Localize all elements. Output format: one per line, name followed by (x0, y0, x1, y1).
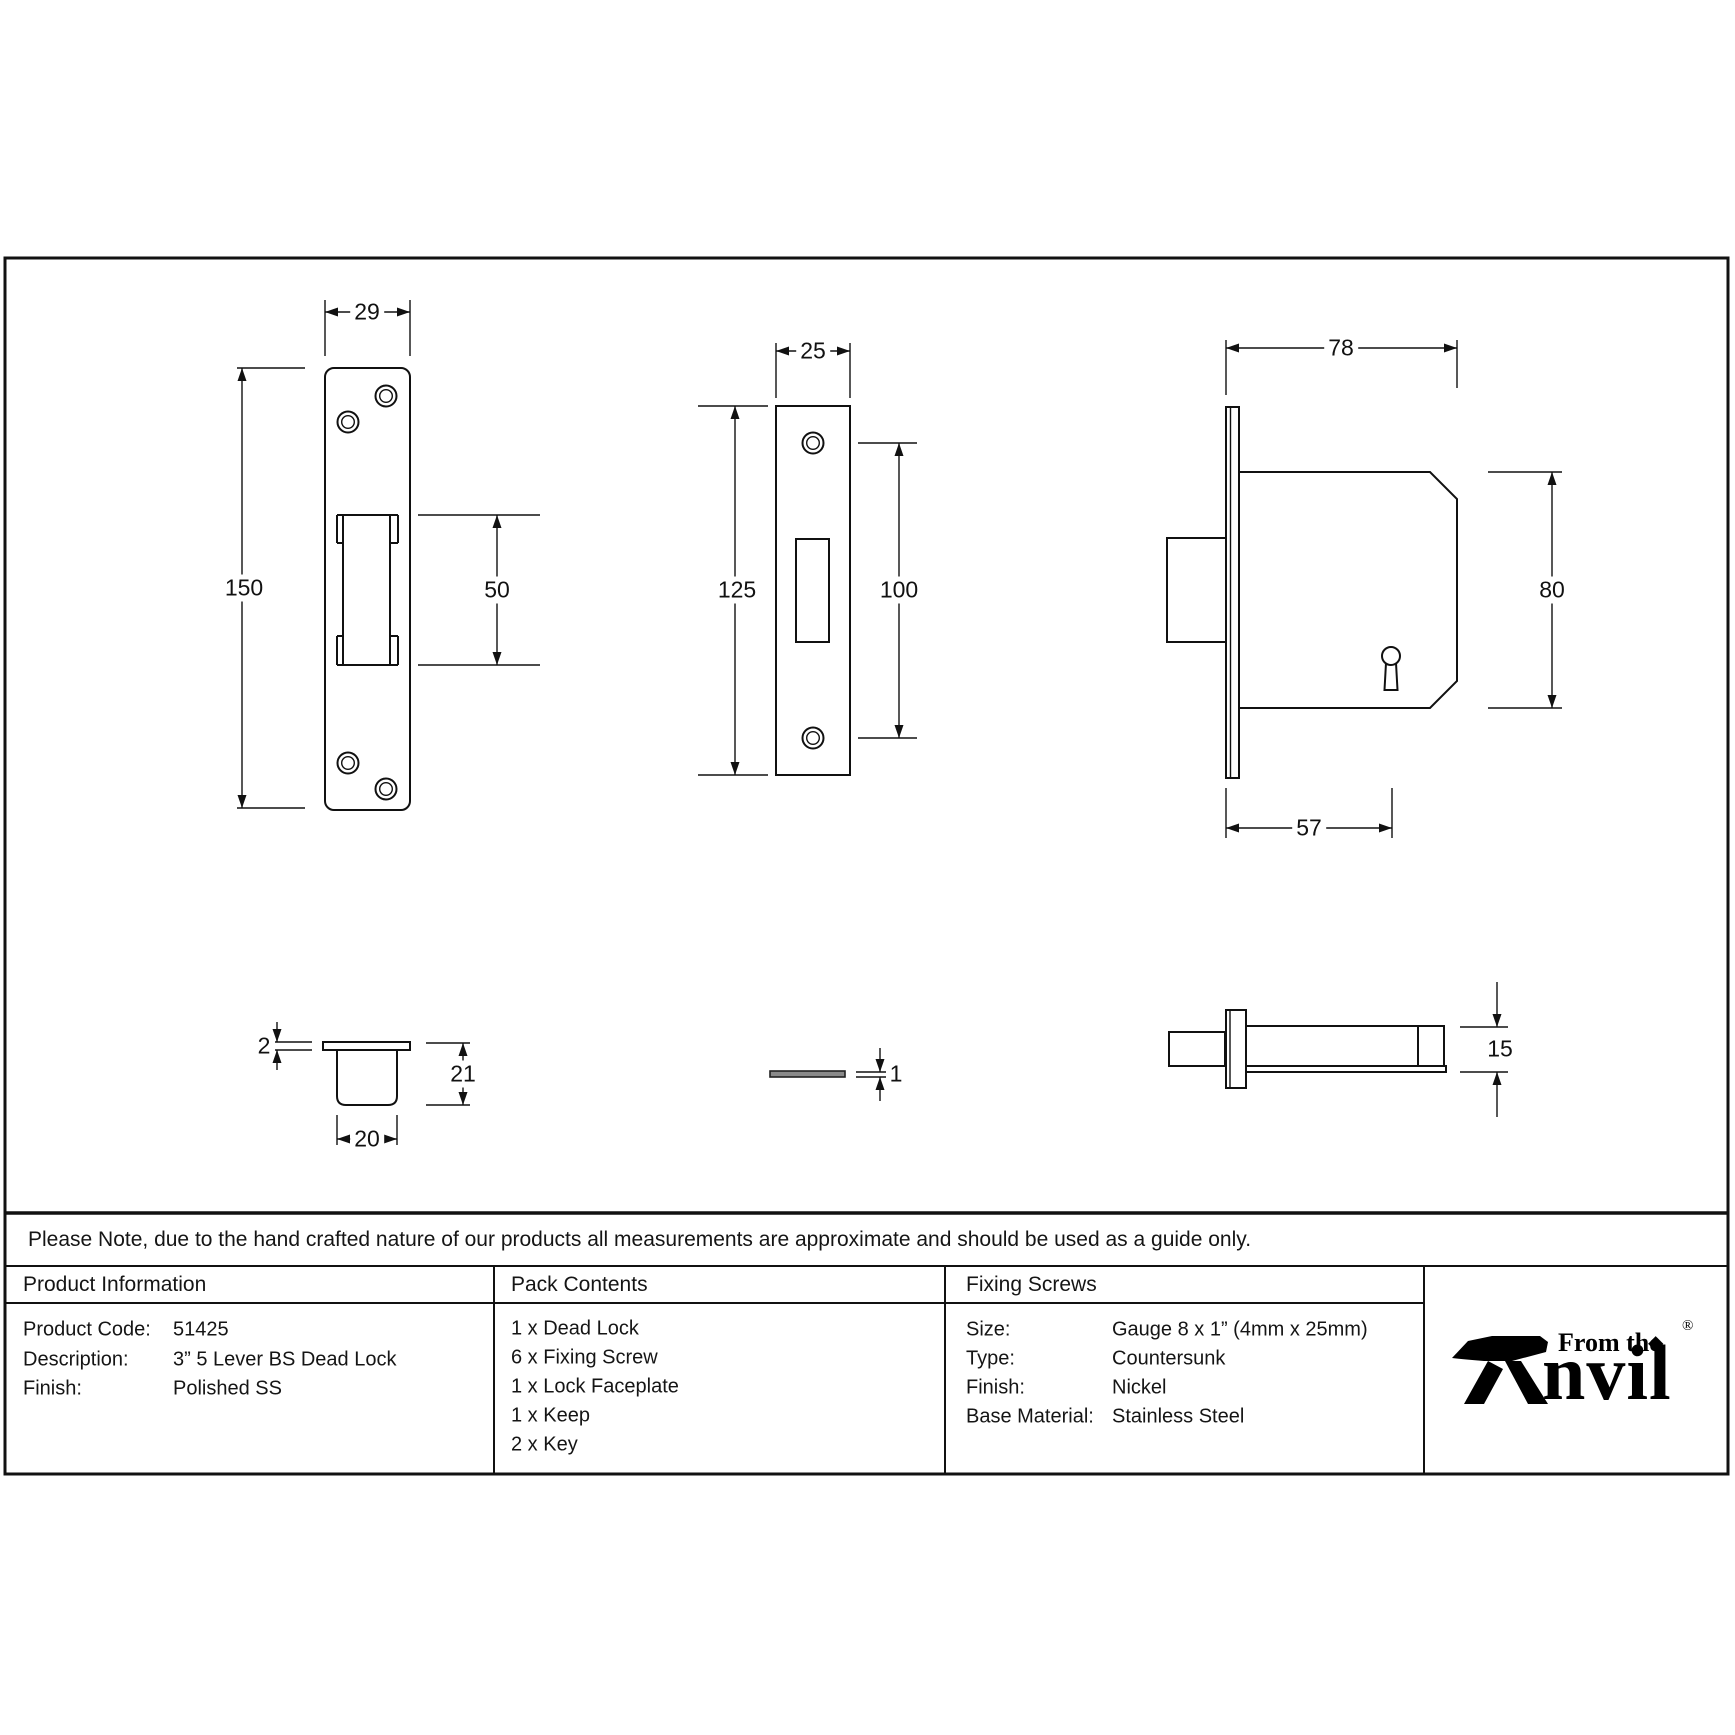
keep-front-view (237, 300, 540, 810)
fixing-screws-header: Fixing Screws (966, 1273, 1097, 1297)
pack-item: 1 x Dead Lock (511, 1318, 639, 1341)
lock-body-side-view (1167, 340, 1562, 838)
description-value: 3” 5 Lever BS Dead Lock (173, 1349, 396, 1372)
finish-label: Finish: (23, 1378, 82, 1401)
lock-faceplate-front-view (698, 343, 917, 775)
dim-label-faceplate-height: 125 (714, 577, 760, 604)
dim-label-keep-box-width: 20 (350, 1126, 384, 1153)
dim-label-keep-depth: 21 (446, 1061, 480, 1088)
dim-label-faceplate-holes: 100 (876, 577, 922, 604)
finish-value: Polished SS (173, 1378, 282, 1401)
dim-label-keep-flange: 2 (254, 1033, 275, 1060)
screw-type-label: Type: (966, 1348, 1015, 1371)
screw-material-label: Base Material: (966, 1406, 1094, 1429)
screw-finish-value: Nickel (1112, 1377, 1166, 1400)
screw-finish-label: Finish: (966, 1377, 1025, 1400)
description-label: Description: (23, 1349, 129, 1372)
registered-trademark-icon: ® (1682, 1318, 1693, 1335)
product-spec-sheet: 29 150 50 25 125 100 78 80 57 2 21 20 1 … (0, 0, 1735, 1735)
dim-label-faceplate-width: 25 (796, 338, 830, 365)
dim-label-keep-width: 29 (350, 299, 384, 326)
pack-item: 2 x Key (511, 1434, 578, 1457)
keyhole-icon (1382, 647, 1400, 665)
anvil-icon (1452, 1336, 1548, 1404)
dim-label-body-width: 78 (1324, 335, 1358, 362)
pack-item: 6 x Fixing Screw (511, 1347, 658, 1370)
dim-label-body-backset: 57 (1292, 815, 1326, 842)
screw-material-value: Stainless Steel (1112, 1406, 1244, 1429)
product-info-header: Product Information (23, 1273, 206, 1297)
screw-type-value: Countersunk (1112, 1348, 1225, 1371)
product-code-label: Product Code: (23, 1319, 151, 1342)
screw-size-label: Size: (966, 1319, 1010, 1342)
sheet-border (5, 258, 1728, 1474)
measurements-note: Please Note, due to the hand crafted nat… (28, 1228, 1251, 1252)
dim-label-keep-height: 150 (221, 575, 267, 602)
technical-drawing-canvas (0, 0, 1735, 1735)
dim-label-bolt-height: 15 (1483, 1036, 1517, 1063)
logo-brand-text: nvil (1542, 1334, 1672, 1412)
screw-size-value: Gauge 8 x 1” (4mm x 25mm) (1112, 1319, 1368, 1342)
product-code-value: 51425 (173, 1319, 229, 1342)
dim-label-keep-slot: 50 (480, 577, 514, 604)
pack-item: 1 x Lock Faceplate (511, 1376, 679, 1399)
pack-item: 1 x Keep (511, 1405, 590, 1428)
bolt-side-view (1169, 982, 1508, 1117)
pack-contents-header: Pack Contents (511, 1273, 648, 1297)
faceplate-edge-view (770, 1048, 886, 1101)
dim-label-body-height: 80 (1535, 577, 1569, 604)
dim-label-plate-thickness: 1 (886, 1061, 907, 1088)
